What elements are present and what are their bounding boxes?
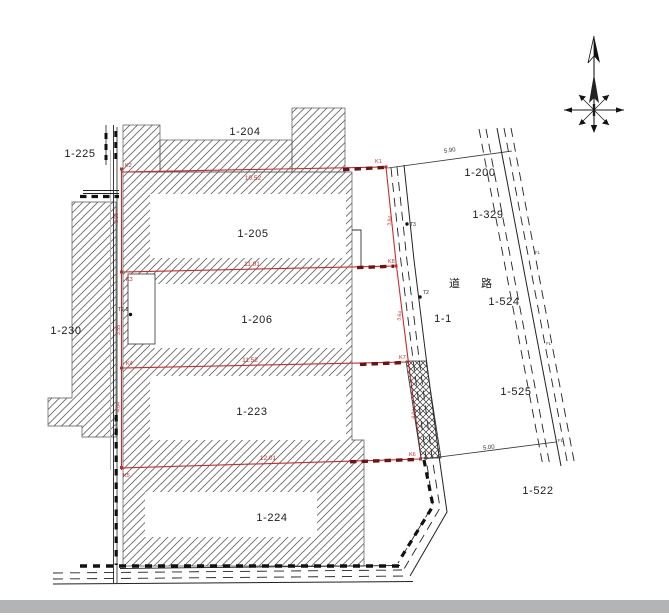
fl-mark-2: FL — [546, 341, 552, 346]
scan-footer-bar — [0, 600, 669, 613]
edge-dimension-east-2: 3.64 — [396, 310, 403, 321]
parcel-label-1-524: 1-524 — [488, 296, 519, 308]
parcel-1-205-area — [150, 194, 346, 258]
parcel-label-1-522: 1-522 — [522, 485, 553, 497]
parcel-label-1-200: 1-200 — [464, 167, 495, 179]
map-drawing: 1-204 1-225 1-205 1-230 1-206 1-223 1-22… — [0, 0, 669, 615]
road-label: 道 路 — [449, 276, 501, 290]
dimension-5-00: 5.00 — [483, 444, 496, 451]
hatched-area-left-block — [48, 202, 116, 437]
dimension-10-52: 10.52 — [245, 175, 262, 182]
point-label-t2-1: T2-1 — [118, 307, 129, 313]
small-structure-outline — [128, 274, 155, 344]
point-label-t2: T2 — [423, 290, 429, 296]
parcel-label-1-1: 1-1 — [434, 313, 452, 325]
parcel-label-1-223: 1-223 — [236, 406, 267, 418]
point-label-k5: K5 — [123, 473, 130, 479]
bottom-road-lines — [53, 566, 413, 585]
compass-north-icon — [564, 36, 624, 133]
parcel-label-1-206: 1-206 — [241, 314, 272, 326]
point-label-k7: K7 — [399, 355, 406, 361]
edge-dimension-west-2: 3.55 — [116, 325, 122, 335]
edge-dimension-east-1: 3.84 — [386, 215, 393, 226]
edge-dimension-east-3: 4.04 — [410, 408, 417, 419]
hatched-area-top-band — [123, 108, 345, 172]
confirmed-boundary-red-dashes — [343, 167, 419, 461]
point-label-k1: K1 — [375, 159, 382, 165]
parcel-label-1-205: 1-205 — [237, 228, 268, 240]
parcel-label-1-224: 1-224 — [256, 512, 287, 524]
parcel-1-224-area — [145, 492, 317, 537]
point-label-k6: K6 — [409, 452, 416, 458]
point-label-k3: K3 — [126, 277, 133, 283]
edge-dimension-west-1: 3.96 — [114, 213, 120, 223]
parcel-label-1-225: 1-225 — [64, 148, 95, 160]
parcel-step-outline — [352, 230, 361, 268]
point-label-t3: T3 — [410, 222, 416, 228]
dimension-12-01: 12.01 — [260, 455, 277, 462]
point-label-k4: K4 — [126, 361, 133, 367]
dimension-5-90: 5.90 — [444, 147, 457, 155]
dimension-11-01: 11.01 — [244, 261, 260, 268]
parcel-label-1-329: 1-329 — [472, 209, 503, 221]
edge-dimension-west-3: 4.04 — [116, 402, 122, 412]
dimension-11-52: 11.52 — [242, 357, 258, 364]
cadastral-map-canvas: 1-204 1-225 1-205 1-230 1-206 1-223 1-22… — [0, 0, 669, 615]
point-label-k2: K2 — [125, 163, 132, 169]
fl-mark-1: FL — [535, 250, 541, 255]
parcel-label-1-525: 1-525 — [500, 386, 531, 398]
parcel-label-1-230: 1-230 — [50, 325, 81, 337]
fl-mark-3: FL — [558, 438, 564, 443]
point-label-k8: K8 — [388, 259, 395, 265]
parcel-label-1-204: 1-204 — [229, 126, 260, 138]
